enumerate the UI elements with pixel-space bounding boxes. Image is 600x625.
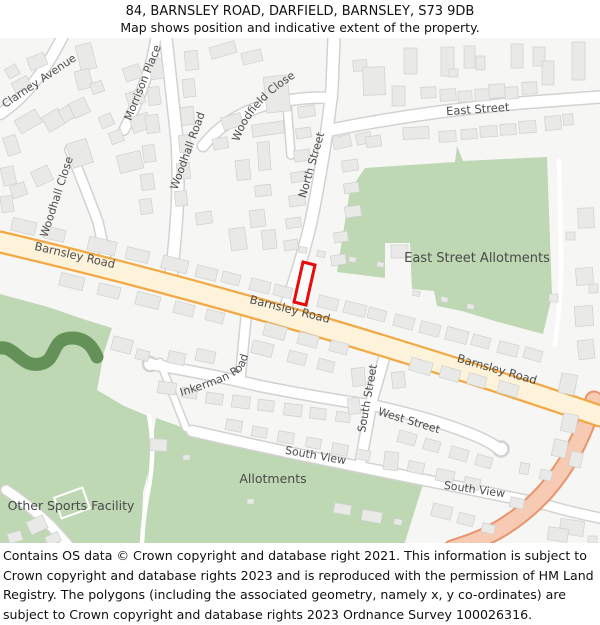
map-svg: Clarney Avenue Morrison Place Woodhall R… <box>0 38 600 543</box>
area-label-other-sports-facility: Other Sports Facility <box>8 498 135 513</box>
page-subtitle: Map shows position and indicative extent… <box>0 20 600 36</box>
page-title: 84, BARNSLEY ROAD, DARFIELD, BARNSLEY, S… <box>0 3 600 20</box>
map-canvas: Clarney Avenue Morrison Place Woodhall R… <box>0 38 600 543</box>
area-label-east-street-allotments: East Street Allotments <box>404 251 550 266</box>
area-label-allotments: Allotments <box>239 471 306 486</box>
map-header: 84, BARNSLEY ROAD, DARFIELD, BARNSLEY, S… <box>0 0 600 38</box>
copyright-text: Contains OS data © Crown copyright and d… <box>0 543 600 624</box>
